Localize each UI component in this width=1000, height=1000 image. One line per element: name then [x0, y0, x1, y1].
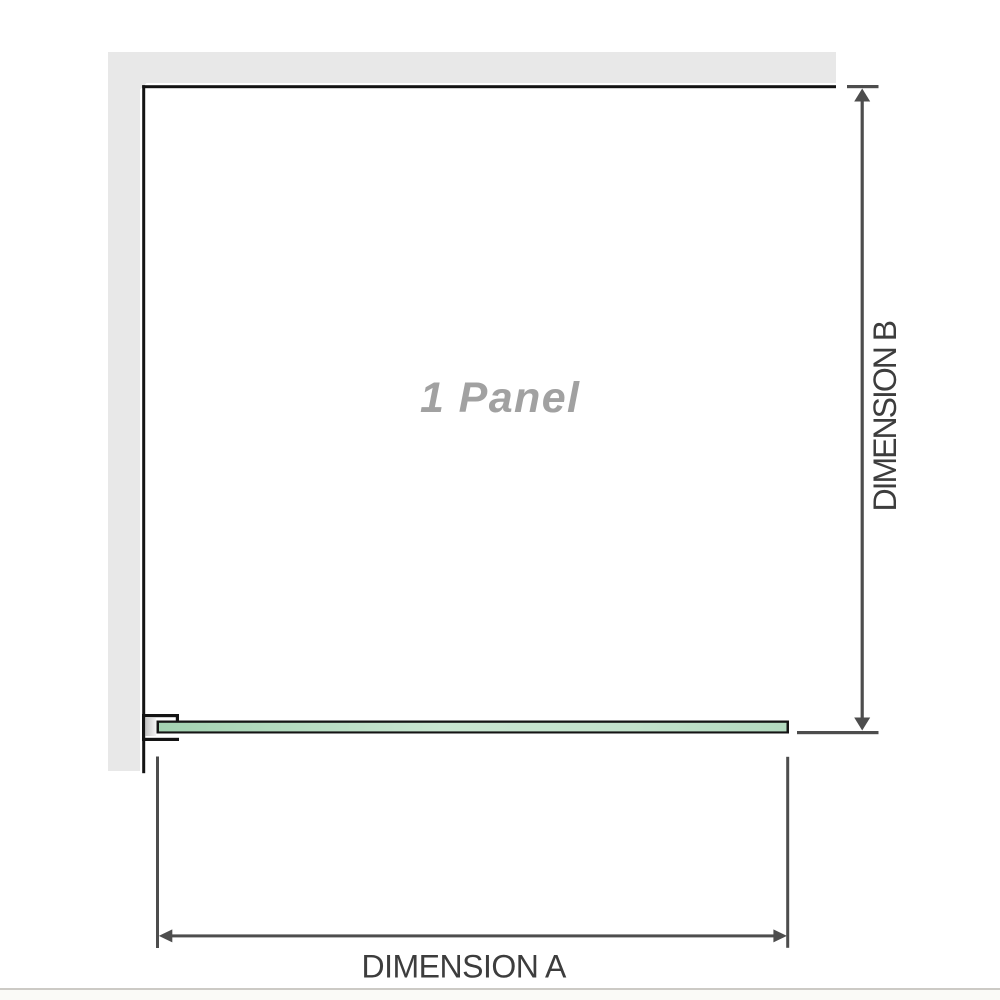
svg-text:DIMENSION B: DIMENSION B	[867, 321, 903, 511]
svg-text:1 Panel: 1 Panel	[420, 374, 580, 422]
svg-text:DIMENSION A: DIMENSION A	[362, 949, 567, 985]
